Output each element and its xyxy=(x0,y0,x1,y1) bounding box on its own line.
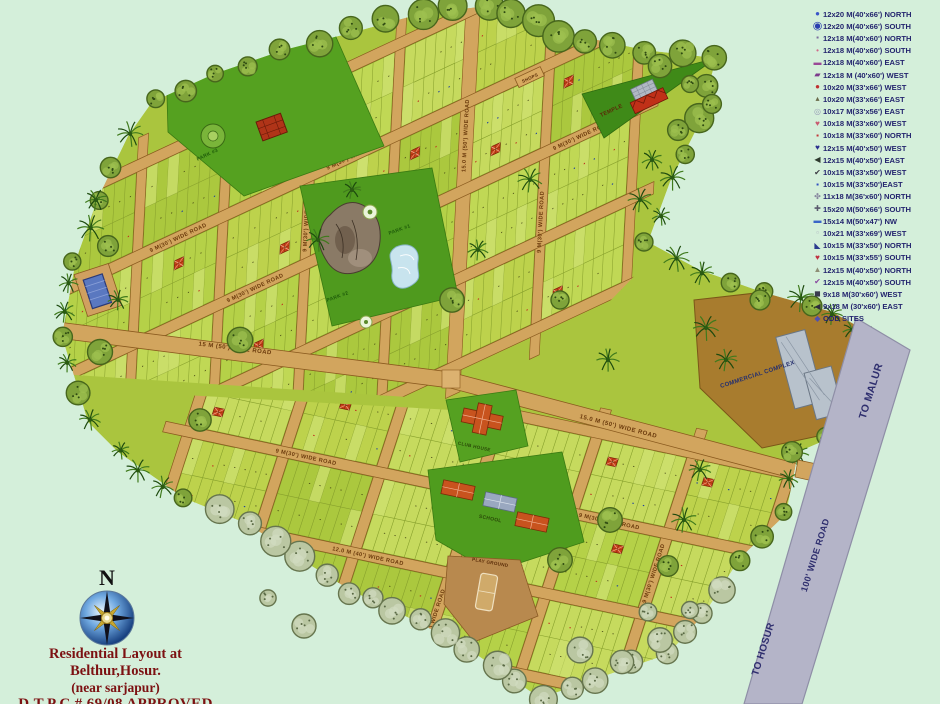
legend-item: ▪12x18 M(40'x60') NORTH xyxy=(812,32,934,44)
tree-icon xyxy=(548,548,573,573)
plot-type-label: 12x18 M (40'x60') WEST xyxy=(823,71,909,80)
tree-icon xyxy=(408,0,438,29)
plot-type-label: 12x15 M(40'x50') EAST xyxy=(823,156,905,165)
tree-icon xyxy=(775,504,792,521)
legend-item: ●12x20 M(40'x66') NORTH xyxy=(812,8,934,20)
plot-type-icon: ● xyxy=(812,83,823,91)
plot-type-icon: ▰ xyxy=(812,71,823,79)
tree-icon xyxy=(238,57,257,76)
tree-icon xyxy=(543,21,574,52)
legend-item: ♥10x15 M(33'x55') SOUTH xyxy=(812,252,934,264)
plot-type-icon: ◀ xyxy=(812,303,823,311)
house-icon xyxy=(261,675,273,685)
tree-icon xyxy=(483,651,511,679)
plot-type-label: 12x20 M(40'x66') SOUTH xyxy=(823,22,911,31)
plot-type-label: 10x18 M(33'x60') WEST xyxy=(823,119,906,128)
legend-item: ◀12x15 M(40'x50') EAST xyxy=(812,154,934,166)
tree-icon xyxy=(669,40,696,67)
legend-item: ▫10x21 M(33'x69') WEST xyxy=(812,227,934,239)
legend-item: ◎10x17 M(33'x56') EAST xyxy=(812,106,934,118)
plot-type-label: 10x20 M(33'x66') EAST xyxy=(823,95,905,104)
legend-item: ♥12x15 M(40'x50') WEST xyxy=(812,142,934,154)
house-icon xyxy=(277,593,289,603)
layout-subtitle: (near sarjapur) xyxy=(8,680,223,696)
plot-size-legend: ●12x20 M(40'x66') NORTH◉12x20 M(40'x66')… xyxy=(812,8,934,325)
tree-icon xyxy=(363,588,383,608)
plot-type-icon: ▪ xyxy=(812,34,823,42)
tree-icon xyxy=(100,157,120,177)
approval-note: D.T.P.C.# 69/08 APPROVED xyxy=(8,696,223,704)
tree-icon xyxy=(316,564,338,586)
tree-icon xyxy=(410,609,431,630)
plot-type-icon: ◀ xyxy=(812,156,823,164)
plot-type-label: 10x20 M(33'x66') WEST xyxy=(823,83,906,92)
legend-item: ▰12x18 M (40'x60') WEST xyxy=(812,69,934,81)
tree-icon xyxy=(639,603,657,621)
tree-icon xyxy=(339,17,362,40)
tree-icon xyxy=(440,288,464,312)
legend-item: ◣10x15 M(33'x50') NORTH xyxy=(812,240,934,252)
tree-icon xyxy=(260,590,276,606)
tree-icon xyxy=(88,340,113,365)
tree-icon xyxy=(98,236,119,257)
legend-item: ✚15x20 M(50'x66') SOUTH xyxy=(812,203,934,215)
legend-item: ◀9x18 M (30'x60') EAST xyxy=(812,301,934,313)
tree-icon xyxy=(189,409,211,431)
plot-type-icon: ▫ xyxy=(812,229,823,237)
legend-item: ▬12x18 M(40'x60') EAST xyxy=(812,57,934,69)
plot-type-label: 12x18 M(40'x60') EAST xyxy=(823,58,905,67)
road-label: 9 M(30') WIDE ROAD xyxy=(184,601,246,620)
tree-icon xyxy=(709,577,735,603)
plot-type-icon: ◆ xyxy=(812,315,823,323)
plot-type-icon: ♥ xyxy=(812,120,823,128)
tree-icon xyxy=(582,668,607,693)
legend-item: ▴10x20 M(33'x66') EAST xyxy=(812,93,934,105)
tree-icon xyxy=(147,90,165,108)
tree-icon xyxy=(269,39,290,60)
plot-type-icon: ✔ xyxy=(812,278,823,286)
plot-type-label: 12x15 M(40'x50') WEST xyxy=(823,144,906,153)
tree-icon xyxy=(261,526,291,556)
plot-type-label: ODD SITES xyxy=(823,314,864,323)
legend-item: ▪10x18 M(33'x60') NORTH xyxy=(812,130,934,142)
tree-icon xyxy=(751,525,773,547)
tree-icon xyxy=(610,650,633,673)
tree-icon xyxy=(561,677,583,699)
plot-type-label: 10x17 M(33'x56') EAST xyxy=(823,107,905,116)
plot-type-icon: ▪ xyxy=(812,181,823,189)
plot-type-icon: ◣ xyxy=(812,242,823,250)
tree-icon xyxy=(175,80,196,101)
tree-icon xyxy=(431,619,459,647)
tree-icon xyxy=(239,512,262,535)
legend-item: ●10x20 M(33'x66') WEST xyxy=(812,81,934,93)
plot-type-icon: ▲ xyxy=(812,266,823,274)
tree-icon xyxy=(307,31,333,57)
tree-icon xyxy=(497,0,525,28)
legend-item: ▪10x15 M(33'x50')EAST xyxy=(812,179,934,191)
tree-icon xyxy=(227,327,252,352)
tree-icon xyxy=(648,54,671,77)
house-icon xyxy=(484,689,496,699)
residential-layout-map: 9 M(30') WIDE ROAD9 M(30') WIDE ROAD9 M(… xyxy=(0,0,940,704)
tree-icon xyxy=(372,5,399,32)
legend-item: ✔12x15 M(40'x50') SOUTH xyxy=(812,276,934,288)
plot-type-label: 9x18 M(30'x60') WEST xyxy=(823,290,902,299)
plot-type-label: 15x20 M(50'x66') SOUTH xyxy=(823,205,911,214)
plot-type-icon: ◎ xyxy=(812,108,823,116)
plot-type-label: 12x15 M(40'x50') NORTH xyxy=(823,266,911,275)
compass: N xyxy=(80,565,134,645)
plot-type-icon: ▪ xyxy=(812,132,823,140)
legend-item: ▬15x14 M(50'x47') NW xyxy=(812,215,934,227)
title-block: Residential Layout at Belthur,Hosur. (ne… xyxy=(8,646,223,704)
plot-type-icon: • xyxy=(812,47,823,55)
tree-icon xyxy=(551,291,569,309)
pond xyxy=(390,245,419,288)
tree-icon xyxy=(174,489,192,507)
plot-type-icon: ✚ xyxy=(812,205,823,213)
legend-item: •12x18 M(40'x60') SOUTH xyxy=(812,45,934,57)
legend-item: ✤11x18 M(36'x60') NORTH xyxy=(812,191,934,203)
plot-type-label: 10x15 M(33'x50')EAST xyxy=(823,180,903,189)
tree-icon xyxy=(598,508,623,533)
legend-item: ◉12x20 M(40'x66') SOUTH xyxy=(812,20,934,32)
plot-type-label: 9x18 M (30'x60') EAST xyxy=(823,302,903,311)
map-root: 9 M(30') WIDE ROAD9 M(30') WIDE ROAD9 M(… xyxy=(0,0,918,704)
tree-icon xyxy=(668,120,689,141)
street xyxy=(31,173,63,592)
plot-type-label: 12x20 M(40'x66') NORTH xyxy=(823,10,911,19)
plot-type-icon: ✤ xyxy=(812,193,823,201)
plot-type-icon: ▴ xyxy=(812,95,823,103)
plot-type-icon: ◉ xyxy=(812,22,823,30)
tree-icon xyxy=(721,273,739,291)
legend-item: ◆ODD SITES xyxy=(812,313,934,325)
plot-type-label: 12x18 M(40'x60') SOUTH xyxy=(823,46,911,55)
legend-item: ◼9x18 M(30'x60') WEST xyxy=(812,288,934,300)
tree-icon xyxy=(567,637,593,663)
plot-type-label: 15x14 M(50'x47') NW xyxy=(823,217,897,226)
plot-type-label: 12x15 M(40'x50') SOUTH xyxy=(823,278,911,287)
tree-icon xyxy=(292,614,316,638)
plot-type-icon: ● xyxy=(812,10,823,18)
tree-icon xyxy=(676,145,694,163)
house-icon xyxy=(587,11,597,24)
tree-icon xyxy=(682,76,699,93)
tree-icon xyxy=(64,253,81,270)
tree-icon xyxy=(658,556,679,577)
road-label: 9 M(30') WIDE ROAD xyxy=(710,650,735,704)
plot-type-icon: ♥ xyxy=(812,254,823,262)
tree-icon xyxy=(750,290,770,310)
plot-type-label: 10x15 M(33'x50') WEST xyxy=(823,168,906,177)
plot-type-label: 12x18 M(40'x60') NORTH xyxy=(823,34,911,43)
house-icon xyxy=(692,681,704,691)
tree-icon xyxy=(635,233,653,251)
tree-icon xyxy=(207,65,223,81)
tree-icon xyxy=(782,442,803,463)
plot-type-icon: ▬ xyxy=(812,217,823,225)
plot-type-label: 11x18 M(36'x60') NORTH xyxy=(823,192,911,201)
tree-icon xyxy=(573,30,596,53)
tree-icon xyxy=(53,327,72,346)
tree-icon xyxy=(730,551,750,571)
tree-icon xyxy=(600,33,625,58)
plot-type-icon: ♥ xyxy=(812,144,823,152)
plot-type-label: 10x18 M(33'x60') NORTH xyxy=(823,131,911,140)
plot-type-label: 10x15 M(33'x50') NORTH xyxy=(823,241,911,250)
layout-title: Residential Layout at Belthur,Hosur. xyxy=(8,646,223,680)
legend-item: ▲12x15 M(40'x50') NORTH xyxy=(812,264,934,276)
tree-icon xyxy=(66,381,90,405)
tree-icon xyxy=(339,583,360,604)
compass-north-letter: N xyxy=(99,565,115,590)
plot-type-icon: ▬ xyxy=(812,59,823,67)
legend-item: ✔10x15 M(33'x50') WEST xyxy=(812,166,934,178)
legend-item: ♥10x18 M(33'x60') WEST xyxy=(812,118,934,130)
plot-type-icon: ✔ xyxy=(812,169,823,177)
plot-type-icon: ◼ xyxy=(812,290,823,298)
tree-icon xyxy=(702,46,726,70)
plot-type-label: 10x15 M(33'x55') SOUTH xyxy=(823,253,911,262)
house-icon xyxy=(702,477,714,487)
plot-type-label: 10x21 M(33'x69') WEST xyxy=(823,229,906,238)
tree-icon xyxy=(681,601,698,618)
tree-icon xyxy=(648,628,673,653)
tree-icon xyxy=(703,95,722,114)
tree-icon xyxy=(674,621,697,644)
tree-icon xyxy=(205,495,234,524)
site-map: 9 M(30') WIDE ROAD9 M(30') WIDE ROAD9 M(… xyxy=(0,0,940,704)
